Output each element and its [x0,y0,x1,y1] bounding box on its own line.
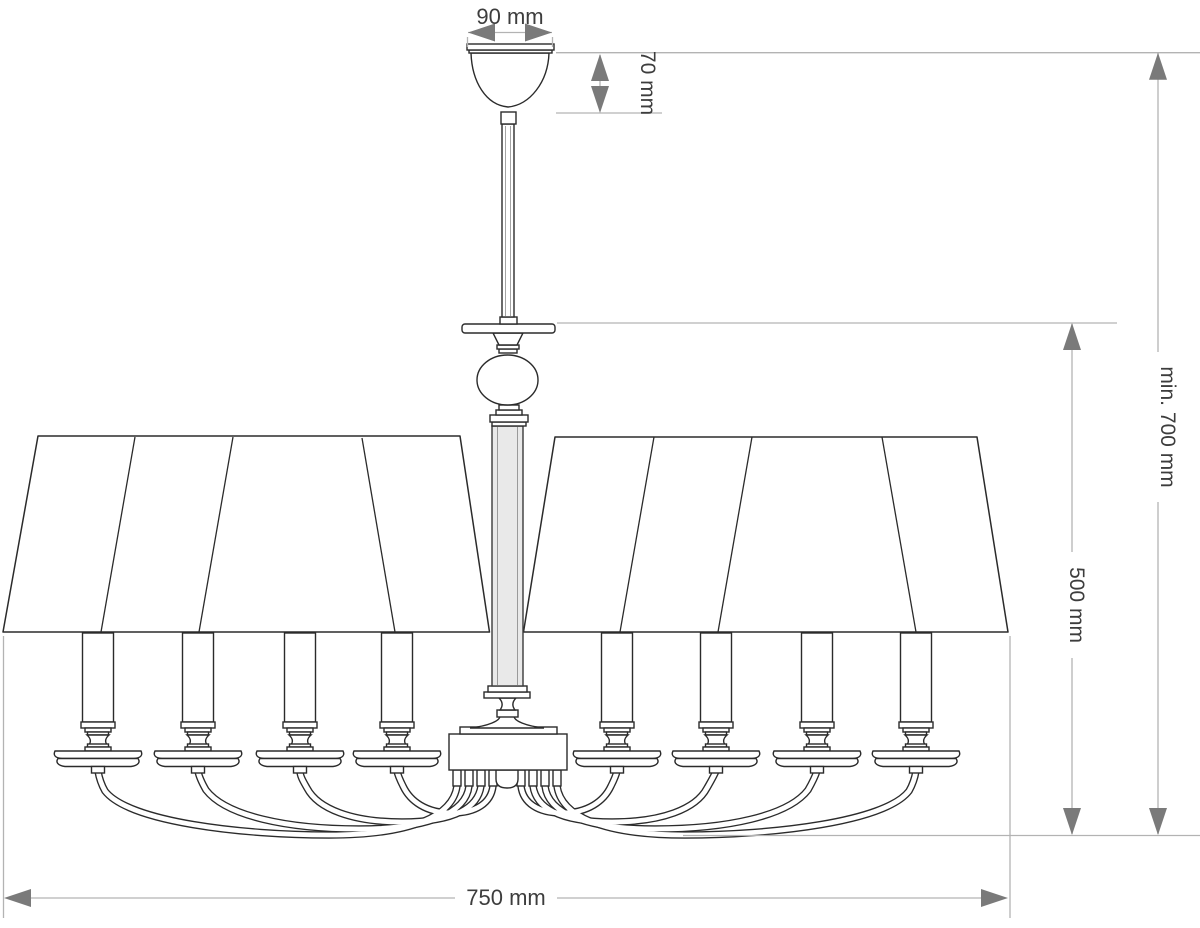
arrow-up-icon [1063,323,1081,350]
canopy-height-label: 70 mm [636,51,659,115]
center-finial-loop [496,770,518,788]
dimension-min-height: min. 700 mm [1149,53,1179,835]
dimension-body-height: 500 mm [1063,323,1088,835]
baluster-bell [470,716,544,728]
dimension-canopy-height: 70 mm [591,51,659,115]
min-height-label: min. 700 mm [1156,366,1179,487]
mount-disc [462,324,555,333]
arrow-down-icon [1149,808,1167,835]
arrow-left-icon [4,889,31,907]
dimension-canopy-width: 90 mm [468,4,552,42]
candle-1 [54,633,141,773]
ball-cap-upper [490,415,528,422]
candle-2 [154,633,241,773]
baluster-ring [497,710,518,717]
column-shaft [492,426,523,686]
hub [449,686,567,788]
candle-6 [672,633,759,773]
central-column [492,426,523,686]
candle-7 [773,633,860,773]
body-height-label: 500 mm [1065,567,1088,643]
arrow-right-icon [981,889,1008,907]
canopy-dome [471,53,549,107]
arrow-up-icon [1149,53,1167,80]
column-collar-lower [484,692,530,698]
hub-body [449,734,567,770]
candle-8 [872,633,959,773]
rod-collar [500,317,517,324]
canopy-neck [501,112,516,124]
baluster-neck [499,698,516,710]
candle-5 [573,633,660,773]
candle-4 [353,633,440,773]
chandelier-dimension-drawing: 90 mm 70 mm min. 700 mm 500 mm [0,0,1200,928]
funnel-neck [493,333,523,345]
arrow-down-icon [1063,808,1081,835]
drop-rod [502,124,514,317]
upper-stem [462,44,555,426]
ball-ornament [477,355,538,405]
candle-3 [256,633,343,773]
dimension-diameter: 750 mm [4,885,1008,910]
shade-left-half [3,436,490,632]
shade-right-half [524,437,1009,632]
arrow-down-icon [591,86,609,113]
canopy-plate [467,44,554,50]
diameter-label: 750 mm [466,885,545,910]
arrow-up-icon [591,54,609,81]
arm-sockets [453,770,561,788]
technical-drawing: 90 mm 70 mm min. 700 mm 500 mm [0,0,1200,928]
column-collar-upper [488,686,527,692]
canopy-width-label: 90 mm [476,4,543,29]
